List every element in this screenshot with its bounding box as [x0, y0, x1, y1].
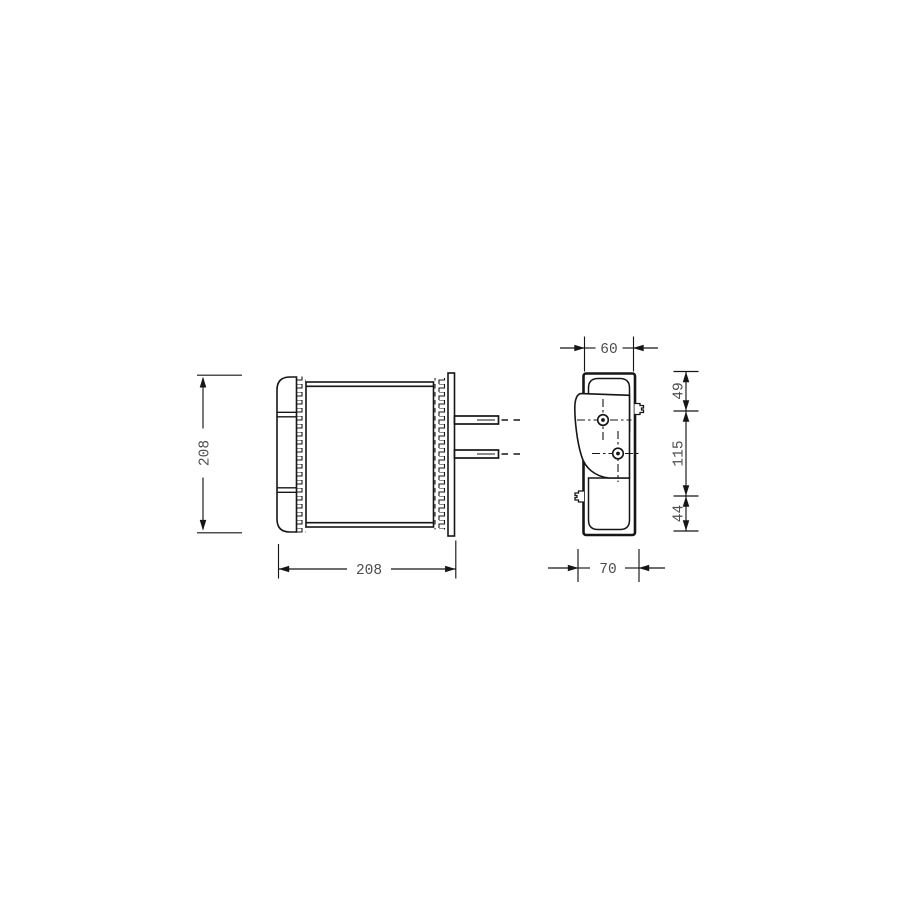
inlet-pipe	[455, 416, 522, 424]
dim-side-right-stack: 49 115 44	[672, 372, 699, 532]
dim-front-width-label: 208	[356, 563, 382, 579]
dim-side-width-top: 60	[560, 337, 658, 372]
side-tank-bottom	[589, 478, 630, 530]
dim-front-height-label: 208	[198, 440, 214, 466]
dim-side-segment-bottom-label: 44	[672, 505, 688, 522]
dim-front-height: 208	[197, 375, 242, 533]
dim-front-width: 208	[279, 541, 456, 580]
technical-drawing-page: 208 208 60	[0, 0, 915, 915]
dim-side-segment-top-label: 49	[672, 382, 688, 399]
pipe-hole-bottom-center	[616, 452, 620, 456]
dim-side-width-bottom: 70	[548, 549, 665, 582]
dim-side-width-bottom-label: 70	[599, 562, 616, 578]
tank-left	[277, 377, 297, 532]
pipe-hole-top-center	[601, 418, 605, 422]
header-crimp-right	[435, 378, 446, 530]
side-view	[575, 374, 644, 536]
outlet-pipe	[455, 450, 522, 458]
front-view	[277, 373, 521, 536]
heater-core-drawing: 208 208 60	[0, 0, 915, 915]
dim-side-width-top-label: 60	[600, 342, 617, 358]
clip-tab-left	[575, 491, 584, 502]
clip-tab-right	[635, 404, 644, 415]
header-crimp-left	[297, 377, 307, 533]
core-fins	[306, 382, 434, 527]
dim-side-segment-middle-label: 115	[672, 440, 688, 466]
mounting-flange	[448, 373, 455, 536]
